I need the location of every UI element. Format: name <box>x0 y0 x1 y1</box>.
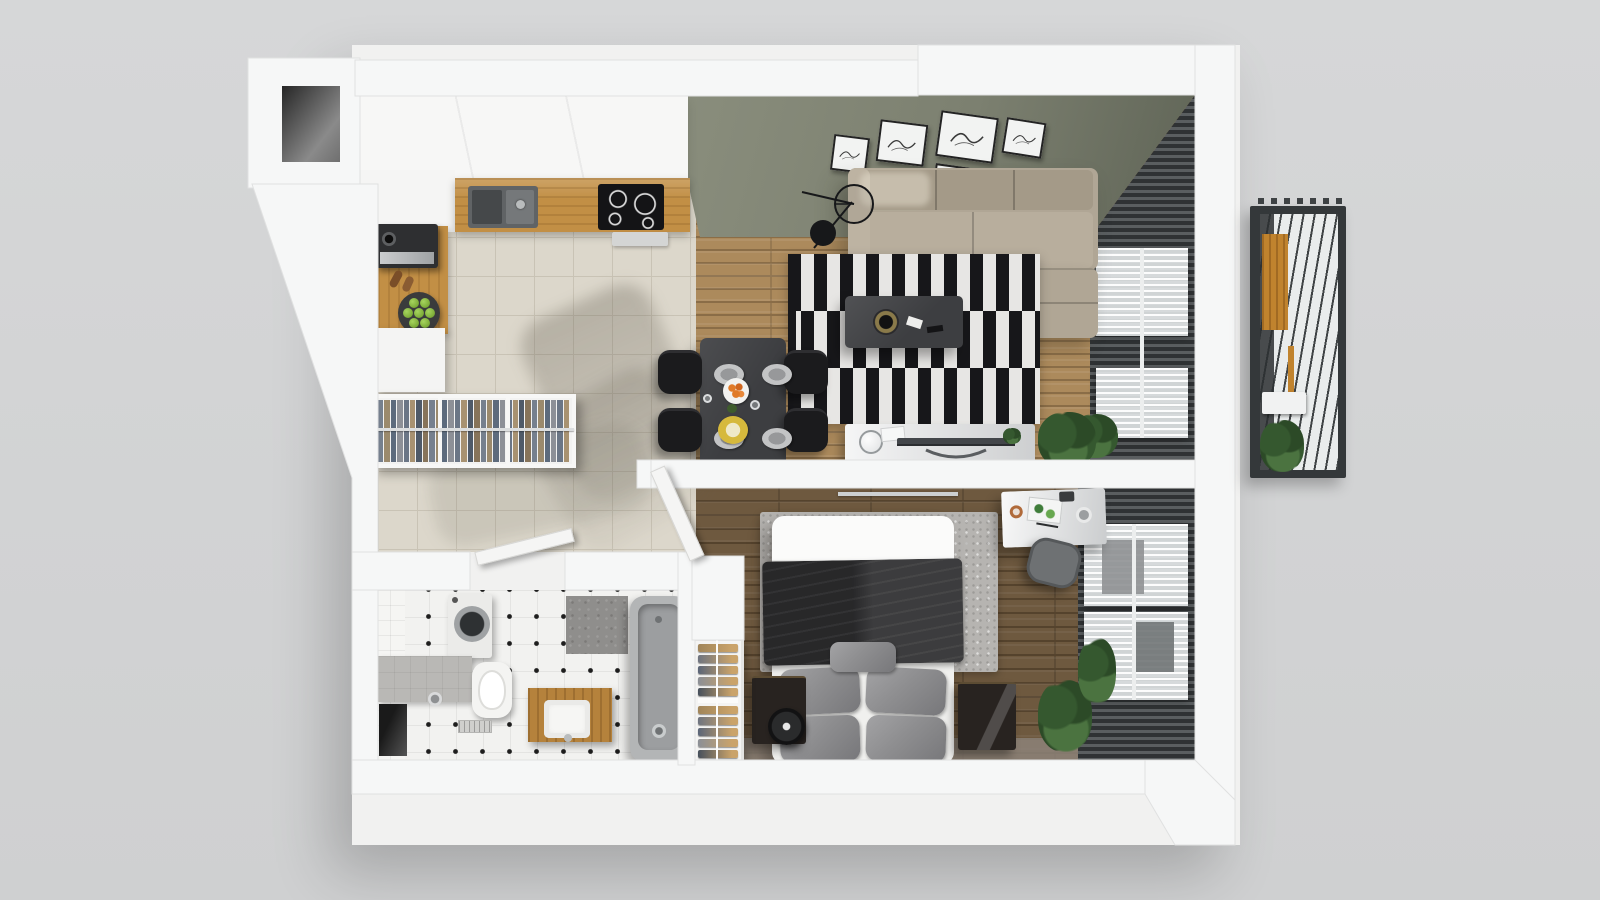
dining-chair <box>658 350 702 394</box>
coffee-table <box>845 296 963 348</box>
washing-machine-dial <box>452 597 458 603</box>
pergola-tooth <box>1297 198 1303 204</box>
desk-copper-dish <box>1010 505 1023 518</box>
hanging-clothes-item <box>455 400 460 462</box>
decor-remote <box>927 325 944 333</box>
bathroom-ledge <box>378 656 472 702</box>
hanging-clothes-item <box>487 400 492 462</box>
desk-notebook <box>1027 497 1063 524</box>
desk-camera <box>1059 491 1074 502</box>
shoe-shelf <box>698 717 738 725</box>
shoe-rack-mid-shelf <box>698 698 738 703</box>
hanging-clothes-item <box>474 400 479 462</box>
lime-fruit <box>409 318 419 328</box>
pergola-tooth <box>1284 198 1290 204</box>
wardrobe-rail <box>366 428 574 431</box>
balcony-bench <box>1262 392 1306 414</box>
extractor-vent <box>612 232 668 246</box>
floor-lamp <box>762 178 882 258</box>
sketch-art <box>881 126 922 161</box>
bed-pillow <box>865 666 947 716</box>
shoe-rack <box>692 638 744 764</box>
sink-basin-left <box>472 190 502 224</box>
bed-pillow <box>865 715 947 764</box>
open-wardrobe <box>372 394 576 468</box>
sheer-gray-panel <box>1136 622 1174 672</box>
hanging-clothes-item <box>500 400 505 462</box>
balcony-wood-rail <box>1288 346 1294 396</box>
wall-art-frame <box>935 110 999 164</box>
sink-faucet <box>516 200 525 209</box>
hanging-clothes-item <box>493 400 498 462</box>
nightstand-right <box>958 682 1016 750</box>
kitchen-corner-cabinet <box>360 170 455 232</box>
kitchen-countertop <box>455 178 690 232</box>
wall-art-frame <box>1001 117 1046 159</box>
hanging-clothes-item <box>545 400 550 462</box>
decor-bowl <box>873 309 899 335</box>
desk-mug <box>1076 507 1093 524</box>
shoe-shelf <box>698 728 738 736</box>
living-plant-large <box>1038 412 1096 468</box>
washing-machine <box>448 594 492 658</box>
floor-plan-render <box>0 0 1600 900</box>
hanging-clothes-item <box>513 400 518 462</box>
sketch-art <box>942 117 993 157</box>
balcony <box>1248 198 1348 480</box>
bathtub <box>630 596 688 762</box>
television-flat <box>891 434 1021 464</box>
hanging-clothes-item <box>468 400 473 462</box>
bedroom-window-plant <box>1078 638 1116 704</box>
wardrobe-divider <box>506 396 510 466</box>
pergola-tooth <box>1310 198 1316 204</box>
kitchen-island-cabinet <box>375 328 445 392</box>
bathtub-drain <box>655 616 662 623</box>
shoe-shelf <box>698 666 738 674</box>
hanging-clothes-item <box>564 400 569 462</box>
hanging-clothes-item <box>519 400 524 462</box>
toilet-seat <box>478 670 506 710</box>
bathtub-faucet <box>652 724 666 738</box>
dining-chair <box>658 408 702 452</box>
shoe-shelf <box>698 644 738 652</box>
herb-garnish <box>727 404 737 413</box>
lime-fruit <box>409 298 419 308</box>
shoe-shelf <box>698 739 738 747</box>
sketch-art <box>835 140 865 169</box>
wall-art-frame <box>876 119 929 167</box>
hanging-clothes-item <box>416 400 421 462</box>
shoe-shelf <box>698 750 738 758</box>
hanging-clothes-item <box>532 400 537 462</box>
glass-sphere-decor <box>859 430 883 454</box>
sideboard-plant-small <box>1003 428 1021 444</box>
pergola-tooth <box>1258 198 1264 204</box>
hanging-clothes-item <box>448 400 453 462</box>
round-speaker <box>768 708 805 745</box>
hanging-clothes-item <box>481 400 486 462</box>
decor-card <box>906 316 923 329</box>
induction-cooktop <box>598 184 664 230</box>
hanging-clothes-item <box>397 400 402 462</box>
hanging-clothes-item <box>404 400 409 462</box>
balcony-plant <box>1260 420 1304 472</box>
lime-fruit <box>420 318 430 328</box>
place-setting-plate <box>762 428 792 449</box>
sketch-art <box>1007 123 1042 153</box>
hanging-clothes-item <box>384 400 389 462</box>
shoe-shelf <box>698 706 738 714</box>
coffee-machine-dial <box>382 232 396 246</box>
shoe-rack-rail <box>716 640 718 762</box>
drinking-glass <box>703 394 712 403</box>
dining-chair <box>784 408 828 452</box>
hanging-clothes-item <box>557 400 562 462</box>
bedroom-window-mullion <box>1132 524 1136 700</box>
drinking-glass <box>750 400 760 410</box>
bathroom-vanity <box>528 688 612 742</box>
pergola-tooth <box>1323 198 1329 204</box>
hanging-clothes-item <box>551 400 556 462</box>
balcony-frame <box>1250 206 1346 478</box>
washing-machine-door <box>454 606 490 642</box>
pergola-tooth <box>1271 198 1277 204</box>
wall-rail <box>838 492 958 496</box>
hanging-clothes-item <box>442 400 447 462</box>
hanging-clothes-item <box>429 400 434 462</box>
vanity-sink <box>544 700 590 738</box>
living-window-mullion <box>1140 248 1144 438</box>
lime-fruit <box>425 308 435 318</box>
shoe-shelf <box>698 688 738 696</box>
hanging-clothes-item <box>410 400 415 462</box>
coffee-machine <box>376 224 438 268</box>
lime-fruit <box>403 308 413 318</box>
hanging-clothes-item <box>525 400 530 462</box>
vanity-faucet <box>564 734 572 742</box>
balcony-teeth-row <box>1258 198 1342 204</box>
serving-plate-tomatoes <box>723 378 749 404</box>
shoe-shelf <box>698 677 738 685</box>
balcony-wood-panel <box>1262 234 1288 330</box>
serving-plate-yellow <box>718 416 748 444</box>
hanging-clothes-item <box>538 400 543 462</box>
pergola-tooth <box>1336 198 1342 204</box>
shoe-rack-shelves <box>698 643 738 759</box>
lime-fruit <box>420 298 430 308</box>
coffee-machine-silver-front <box>380 252 434 264</box>
floor-drain <box>458 720 492 733</box>
tv-sideboard <box>845 424 1035 468</box>
bathroom-wall-niche <box>379 704 407 756</box>
place-setting-plate <box>762 364 792 385</box>
hanging-clothes-item <box>391 400 396 462</box>
kitchen-upper-cabinets <box>360 95 688 180</box>
lime-fruit <box>414 308 424 318</box>
kitchen-sink <box>468 186 538 228</box>
toilet <box>472 662 512 718</box>
hanging-clothes-item <box>423 400 428 462</box>
shower-concrete-panel <box>566 596 628 654</box>
wardrobe-clothes <box>378 400 570 462</box>
hanging-clothes-item <box>378 400 383 462</box>
sheer-gray-panel <box>1102 540 1144 594</box>
bed-small-pillow <box>830 642 896 672</box>
shoe-shelf <box>698 655 738 663</box>
hanging-clothes-item <box>461 400 466 462</box>
bathroom-bin <box>428 692 442 706</box>
wardrobe-divider <box>438 396 442 466</box>
